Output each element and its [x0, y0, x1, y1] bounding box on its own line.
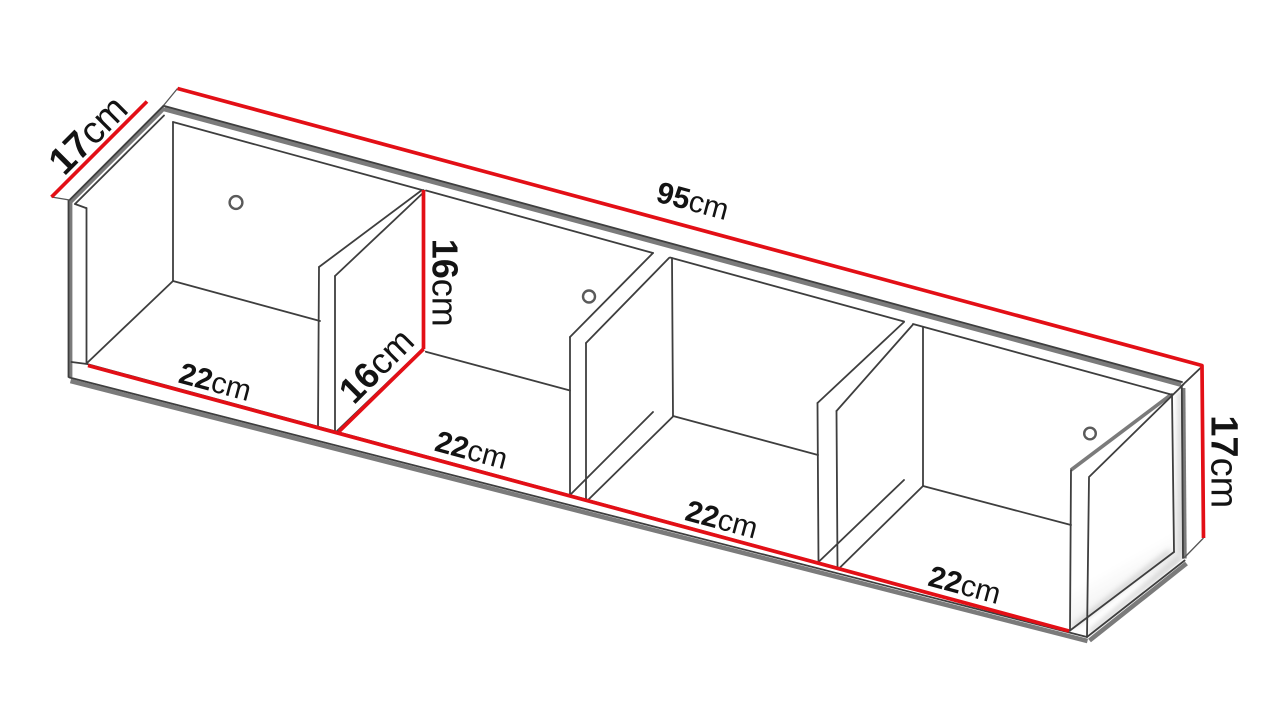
svg-text:16cm: 16cm: [425, 239, 466, 327]
svg-text:17cm: 17cm: [1202, 415, 1244, 508]
